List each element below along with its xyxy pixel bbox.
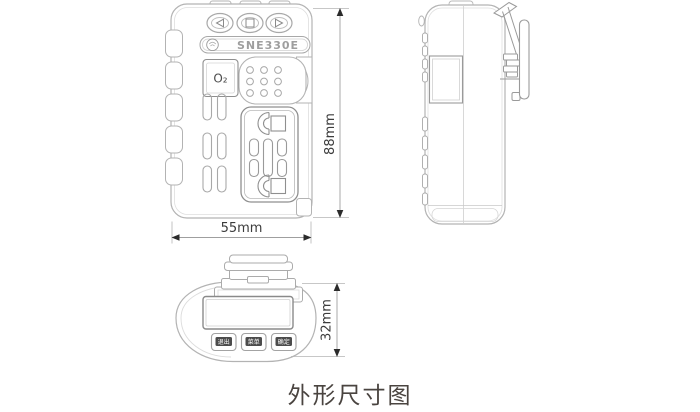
sensor-panel [241, 107, 298, 202]
clip-mount-fitting [215, 255, 303, 302]
gas-badge-label: O₂ [213, 72, 227, 86]
arrow-right-icon [304, 234, 312, 241]
speaker-area [239, 57, 312, 104]
gas-badge: O₂ [203, 60, 238, 97]
front-view: SNE330E O₂ [166, 1, 313, 218]
nav-button-right [266, 14, 292, 33]
bottom-button-menu-label: 菜单 [248, 338, 260, 346]
dimension-drawing-page: SNE330E O₂ [0, 0, 700, 412]
arrow-down-icon [334, 349, 341, 357]
nav-button-middle [237, 14, 263, 33]
bottom-buttons: 退出 菜单 确定 [212, 334, 297, 351]
model-label-bar: SNE330E [200, 37, 310, 54]
nav-button-left [207, 14, 233, 33]
arrow-left-icon [172, 234, 180, 241]
clip-bar [520, 20, 530, 99]
corner-notch [297, 199, 312, 217]
dimension-height: 88mm [313, 8, 349, 218]
bottom-button-exit-label: 退出 [218, 338, 230, 346]
clip-spring [504, 54, 521, 77]
side-sensor-window [430, 56, 463, 103]
model-label: SNE330E [237, 39, 299, 52]
display-window [203, 297, 293, 330]
bottom-view: 退出 菜单 确定 [176, 255, 316, 362]
diagram-title: 外形尺寸图 [288, 383, 413, 409]
side-button-bump [419, 16, 425, 26]
grip-ridges [166, 30, 183, 185]
width-dimension-label: 55mm [221, 221, 263, 236]
arrow-up-icon [334, 283, 341, 291]
dimension-width: 55mm [172, 221, 312, 244]
bottom-button-confirm: 确定 [272, 334, 297, 351]
depth-dimension-label: 32mm [320, 299, 335, 341]
arrow-up-icon [337, 8, 344, 16]
bottom-button-menu: 菜单 [242, 334, 267, 351]
speaker-panel [239, 57, 306, 104]
side-view [419, 1, 529, 224]
side-body-outline [425, 5, 505, 224]
clip-foot [512, 93, 520, 101]
bottom-button-confirm-label: 确定 [278, 338, 290, 346]
arrow-down-icon [337, 210, 344, 218]
bottom-button-exit: 退出 [212, 334, 237, 351]
outline-dimension-diagram: SNE330E O₂ [0, 0, 700, 412]
height-dimension-label: 88mm [323, 113, 338, 155]
